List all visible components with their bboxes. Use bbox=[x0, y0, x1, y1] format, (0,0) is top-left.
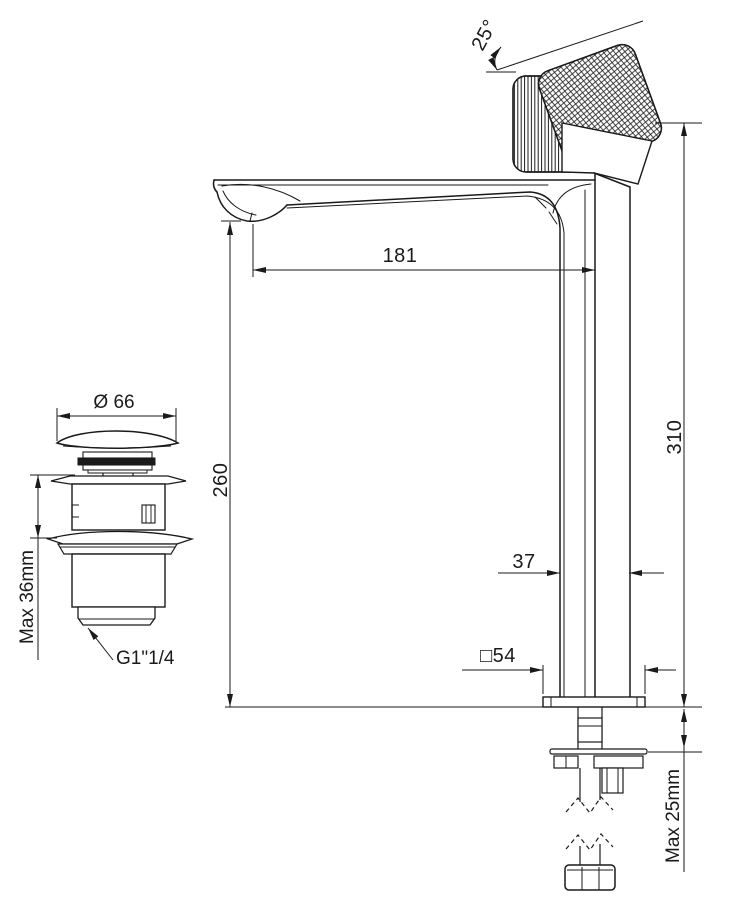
drain-deck-max-label: Max 36mm bbox=[17, 550, 38, 644]
drain-diameter-label: Ø 66 bbox=[93, 392, 134, 413]
total-height-label: 310 bbox=[664, 420, 686, 455]
drain-thread-label: G1"1/4 bbox=[116, 648, 175, 669]
angle-dimension-label: 25° bbox=[468, 16, 502, 54]
deck-max-label: Max 25mm bbox=[663, 769, 684, 863]
technical-drawing-page: 25° bbox=[0, 0, 742, 921]
faucet-dimension-drawing: 25° bbox=[0, 0, 742, 921]
spout-reach-label: 181 bbox=[383, 245, 418, 267]
spout-height-label: 260 bbox=[210, 463, 232, 498]
flexible-hose-break bbox=[566, 797, 613, 850]
body-width-label: 37 bbox=[512, 551, 535, 573]
faucet-body-outline bbox=[213, 173, 630, 697]
mounting-hardware bbox=[550, 707, 647, 802]
base-flange bbox=[543, 697, 645, 707]
hose-nut bbox=[565, 844, 615, 890]
popup-waste-drain bbox=[48, 431, 192, 625]
base-square-label: □54 bbox=[480, 645, 516, 667]
